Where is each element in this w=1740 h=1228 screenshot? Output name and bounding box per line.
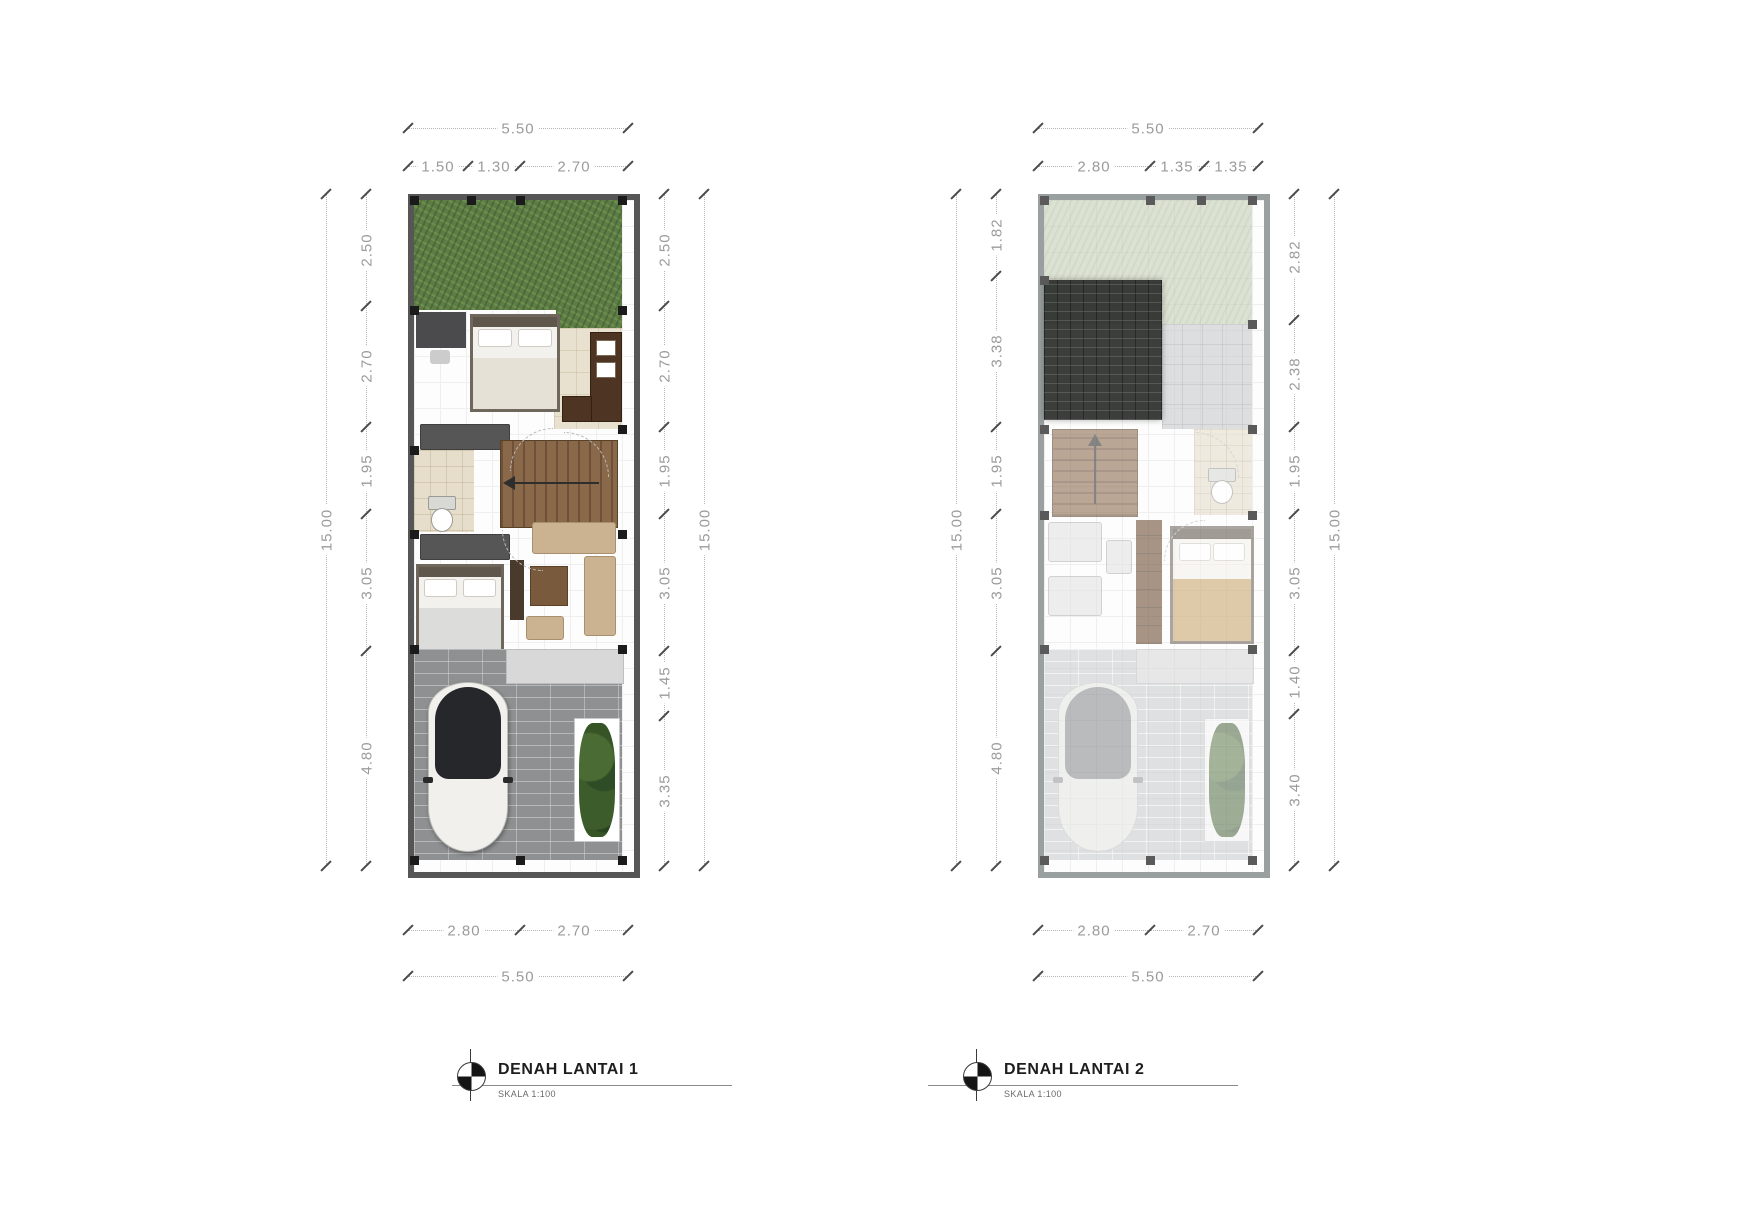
door-arc-bedroom1 [510,428,553,471]
dim-label: 1.45 [657,663,674,704]
column-marker [410,530,419,539]
plan2-scale: SKALA 1:100 [1004,1089,1062,1099]
dim-segment: 15.00 [326,194,327,866]
dim-segment: 3.05 [366,514,367,651]
dim-label: 1.50 [417,159,458,176]
dim-label: 1.95 [359,450,376,491]
dim-label: 2.82 [1287,237,1304,278]
column-marker [410,196,419,205]
planter-shrub [574,718,620,842]
stairs-arrow-line [513,482,599,484]
dim-segment: 2.50 [366,194,367,306]
car [428,682,508,852]
dim-label: 15.00 [697,505,714,556]
section-marker-icon [457,1062,486,1091]
dim-label: 5.50 [497,121,538,138]
planter-shrub-below [1204,718,1250,842]
stairs-upper [1052,429,1138,517]
dresser [420,534,510,560]
column-marker [1040,425,1049,434]
dim-label: 4.80 [989,738,1006,779]
dim-segment: 2.70 [664,306,665,427]
dim-segment: 15.00 [956,194,957,866]
column-marker [1248,320,1257,329]
garden-edge [556,310,622,328]
side-table [1106,540,1132,574]
bed-second [416,564,504,662]
kitchen-counter-return [562,396,592,422]
dim-label: 3.40 [1287,769,1304,810]
dim-label: 1.30 [473,159,514,176]
dim-label: 1.35 [1156,159,1197,176]
dim-segment: 2.82 [1294,194,1295,320]
column-marker [1248,196,1257,205]
dim-label: 2.70 [359,346,376,387]
dim-label: 5.50 [1127,121,1168,138]
section-marker-icon [963,1062,992,1091]
column-marker [618,306,627,315]
toilet-upper [1211,480,1233,504]
dim-label: 1.40 [1287,662,1304,703]
dim-label: 3.38 [989,331,1006,372]
column-marker [467,196,476,205]
column-marker [1248,645,1257,654]
dim-label: 3.05 [359,562,376,603]
desk-chair [430,350,450,364]
plan1-title: DENAH LANTAI 1 [498,1061,639,1079]
column-marker [516,196,525,205]
roof-shingles [1044,280,1162,420]
dim-label: 15.00 [1327,505,1344,556]
dim-segment: 2.70 [366,306,367,427]
dim-segment: 4.80 [366,651,367,866]
dim-label: 2.70 [657,346,674,387]
desk [416,312,466,348]
dim-label: 3.05 [657,562,674,603]
sofa-long [532,522,616,554]
column-marker [618,856,627,865]
garden [414,200,622,310]
column-marker [1040,511,1049,520]
dim-label: 1.82 [989,214,1006,255]
column-marker [1197,196,1206,205]
dim-label: 5.50 [1127,969,1168,986]
dim-label: 1.95 [989,450,1006,491]
dim-label: 2.70 [553,923,594,940]
dim-label: 15.00 [949,505,966,556]
wardrobe [420,424,510,450]
dim-label: 2.38 [1287,353,1304,394]
dim-segment: 1.95 [996,427,997,514]
dim-label: 2.70 [1183,923,1224,940]
floor-plan-1-interior [414,200,634,872]
column-marker [1146,196,1155,205]
column-marker [1040,196,1049,205]
column-marker [1040,276,1049,285]
floor-plan-2-interior [1044,200,1264,872]
column-marker [618,196,627,205]
wardrobe-upper [1136,520,1162,644]
floor-plan-2 [1038,194,1270,878]
dim-segment: 1.45 [664,651,665,716]
dim-segment: 3.05 [664,514,665,651]
column-marker [1248,511,1257,520]
dim-segment: 1.40 [1294,651,1295,714]
dim-segment: 3.05 [1294,514,1295,651]
dim-segment: 2.50 [664,194,665,306]
dim-segment: 2.80 [408,930,520,931]
dim-label: 3.05 [989,562,1006,603]
dim-segment: 1.50 [408,166,468,167]
column-marker [410,446,419,455]
column-marker [618,425,627,434]
drawing-canvas: 5.50 1.501.302.70 15.00 2.502.701.953.05… [0,0,1740,1228]
dim-label: 1.35 [1210,159,1251,176]
dim-segment: 5.50 [1038,128,1258,129]
title-block-plan1: DENAH LANTAI 1 SKALA 1:100 [452,1055,732,1125]
column-marker [410,306,419,315]
dim-segment: 1.95 [1294,427,1295,514]
dim-segment: 1.35 [1150,166,1204,167]
dim-label: 3.05 [1287,562,1304,603]
dim-segment: 5.50 [408,128,628,129]
dim-segment: 3.38 [996,276,997,427]
door-arc-bedroom2 [502,530,543,571]
sofa-single [526,616,564,640]
dim-label: 2.80 [1073,923,1114,940]
sofa-sitting-2 [1048,576,1102,616]
column-marker [410,645,419,654]
terrace-step-below [1136,649,1254,684]
sofa-sitting-1 [1048,522,1102,562]
column-marker [516,856,525,865]
dim-segment: 1.82 [996,194,997,276]
dim-segment: 2.80 [1038,166,1150,167]
dim-segment: 2.80 [1038,930,1150,931]
dim-segment: 5.50 [1038,976,1258,977]
dim-segment: 4.80 [996,651,997,866]
dim-label: 5.50 [497,969,538,986]
dim-label: 2.50 [657,229,674,270]
car-below [1058,682,1138,852]
column-marker [1248,425,1257,434]
bed-master [470,314,560,412]
column-marker [1040,645,1049,654]
dim-label: 2.50 [359,229,376,270]
floor-plan-1 [408,194,640,878]
dim-segment: 3.35 [664,716,665,866]
dim-segment: 3.40 [1294,714,1295,866]
dim-label: 2.80 [443,923,484,940]
dim-segment: 2.70 [520,930,628,931]
plan2-title: DENAH LANTAI 2 [1004,1061,1145,1079]
dim-label: 2.70 [553,159,594,176]
dim-label: 4.80 [359,738,376,779]
title-block-plan2: DENAH LANTAI 2 SKALA 1:100 [958,1055,1238,1125]
dim-label: 3.35 [657,770,674,811]
column-marker [1040,856,1049,865]
column-marker [410,856,419,865]
dim-segment: 2.70 [520,166,628,167]
coffee-table [530,566,568,606]
dim-segment: 15.00 [704,194,705,866]
sofa-side [584,556,616,636]
dim-segment: 3.05 [996,514,997,651]
dim-label: 1.95 [657,450,674,491]
dim-segment: 15.00 [1334,194,1335,866]
tv-cabinet [510,560,524,620]
dim-label: 2.80 [1073,159,1114,176]
dim-segment: 1.35 [1204,166,1258,167]
column-marker [1248,856,1257,865]
column-marker [1146,856,1155,865]
dim-segment: 2.70 [1150,930,1258,931]
dim-label: 15.00 [319,505,336,556]
toilet [431,508,453,532]
kitchen-sink [596,340,616,356]
dim-segment: 1.30 [468,166,520,167]
balcony-floor [1162,324,1252,429]
stairs-arrow-head [1088,434,1102,446]
kitchen-sink-2 [596,362,616,378]
dim-segment: 5.50 [408,976,628,977]
dim-label: 1.95 [1287,450,1304,491]
plan1-scale: SKALA 1:100 [498,1089,556,1099]
stairs-arrow-head [503,476,515,490]
title-underline [452,1085,732,1086]
column-marker [618,530,627,539]
dim-segment: 1.95 [664,427,665,514]
stairs-arrow-line [1094,444,1096,504]
column-marker [618,645,627,654]
dim-segment: 1.95 [366,427,367,514]
dim-segment: 2.38 [1294,320,1295,427]
door-arc-entry [564,432,609,477]
terrace-step [506,649,624,684]
